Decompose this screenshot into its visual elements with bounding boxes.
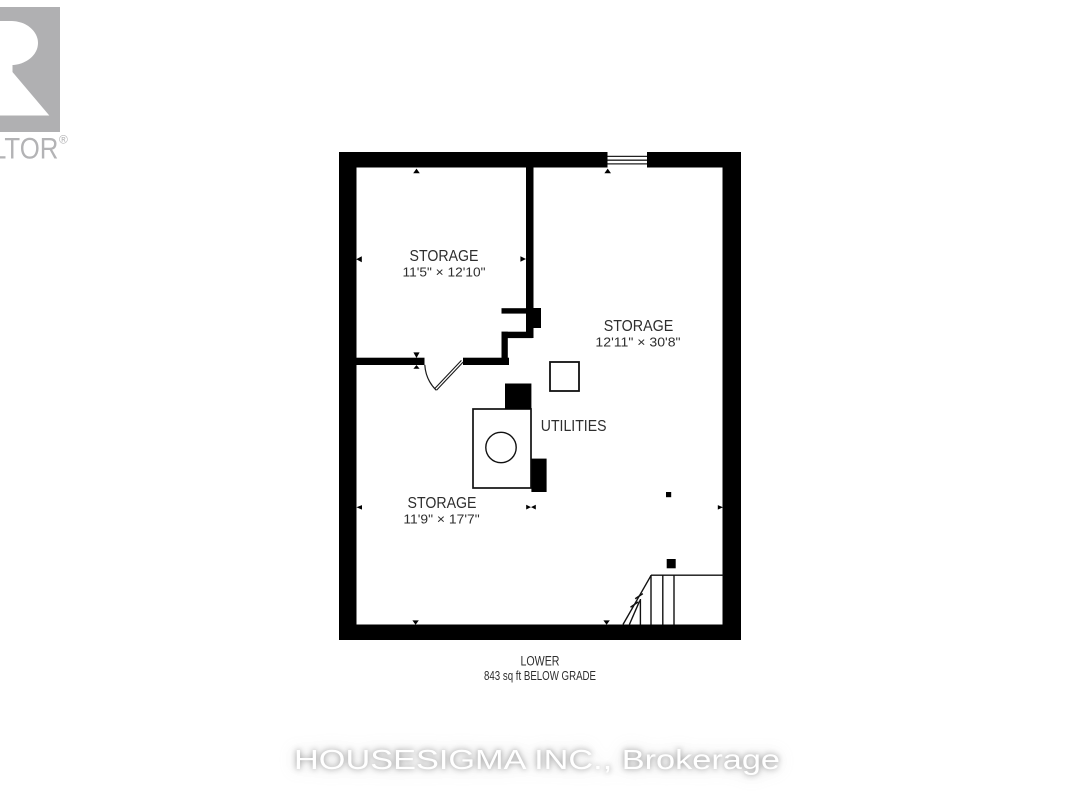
svg-text:STORAGE: STORAGE (408, 495, 477, 512)
svg-text:843 sq ft BELOW GRADE: 843 sq ft BELOW GRADE (484, 669, 596, 683)
svg-text:LOWER: LOWER (521, 654, 560, 669)
svg-text:STORAGE: STORAGE (604, 318, 674, 335)
svg-text:STORAGE: STORAGE (410, 248, 479, 265)
svg-text:11'9" × 17'7": 11'9" × 17'7" (403, 512, 480, 527)
svg-text:®: ® (59, 133, 68, 147)
svg-text:12'11" × 30'8": 12'11" × 30'8" (595, 335, 681, 350)
svg-text:11'5" × 12'10": 11'5" × 12'10" (403, 265, 486, 280)
svg-text:HOUSESIGMA INC., Brokerage: HOUSESIGMA INC., Brokerage (294, 744, 780, 775)
svg-text:UTILITIES: UTILITIES (541, 418, 607, 435)
svg-text:LTOR: LTOR (0, 132, 58, 165)
